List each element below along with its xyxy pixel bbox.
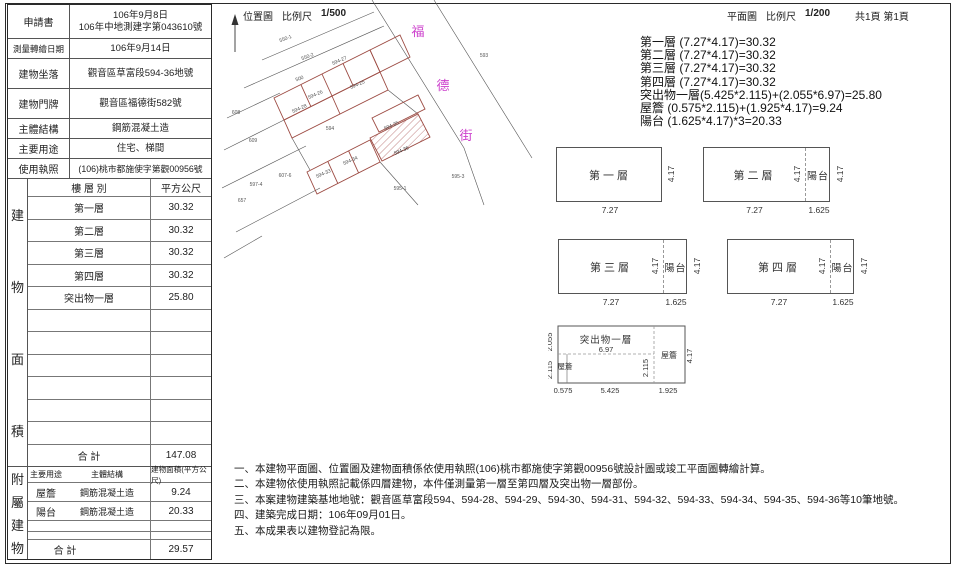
site-map: 福 德 街 550-1 550-2 500 594-27 594-25 594-… xyxy=(222,0,542,305)
street-char: 福 xyxy=(411,24,424,39)
floor-area: 30.32 xyxy=(151,242,211,264)
street-char: 德 xyxy=(436,78,449,93)
info-label: 主體結構 xyxy=(8,119,70,138)
calc-line: 第三層 (7.27*4.17)=30.32 xyxy=(640,62,882,75)
info-label: 建物坐落 xyxy=(8,59,70,88)
floor-plan-second-floor: 第二層 4.17 陽台 4.17 7.27 1.625 xyxy=(703,147,830,202)
parcel-label: 593 xyxy=(480,53,489,59)
plan-scale-label: 比例尺 xyxy=(766,8,796,23)
width-dimension: 7.27 xyxy=(728,297,830,307)
section-label-building-area: 建 物 面 積 xyxy=(8,179,28,466)
column-header-structure: 主體結構 xyxy=(64,467,151,482)
section-char: 物 xyxy=(11,277,24,296)
annex-header-row: 主要用途 主體結構 建物面積(平方公尺) xyxy=(28,467,211,483)
note-line: 五、本成果表以建物登記為限。 xyxy=(234,524,904,539)
height-dimension: 4.17 xyxy=(792,159,802,189)
floor-name: 第四層 xyxy=(28,265,151,287)
info-value: 觀音區福德街582號 xyxy=(70,89,211,118)
width-dimension: 7.27 xyxy=(559,297,663,307)
dimension: 1.925 xyxy=(659,386,678,395)
info-value: 106年9月14日 xyxy=(70,39,211,58)
floor-label: 第二層 xyxy=(704,167,805,183)
info-value: 鋼筋混凝土造 xyxy=(70,119,211,138)
table-row: 陽台 鋼筋混凝土造 20.33 xyxy=(28,502,211,521)
table-row xyxy=(28,377,211,400)
height-dimension: 4.17 xyxy=(817,251,827,281)
floor-name: 第二層 xyxy=(28,220,151,242)
annex-use: 陽台 xyxy=(28,502,64,520)
parcel-labels: 550-1 550-2 500 594-27 594-25 594-26 594… xyxy=(232,34,489,204)
table-row: 第一層 30.32 xyxy=(28,197,211,220)
parcel-label: 594-26 xyxy=(307,89,324,101)
height-dimension: 4.17 xyxy=(650,251,660,281)
table-row: 第二層 30.32 xyxy=(28,220,211,243)
note-line: 三、本案建物建築基地地號：觀音區草富段594、594-28、594-29、594… xyxy=(234,493,904,508)
floor-label: 第四層 xyxy=(728,259,830,275)
annex-building-table: 附 屬 建 物 主要用途 主體結構 建物面積(平方公尺) 屋簷 鋼筋混凝土造 9… xyxy=(8,467,211,559)
table-row: 第四層 30.32 xyxy=(28,265,211,288)
column-header-use: 主要用途 xyxy=(28,467,64,482)
calc-line: 陽台 (1.625*4.17)*3=20.33 xyxy=(640,115,882,128)
floor-plan-third-floor: 第三層 4.17 陽台 4.17 7.27 1.625 xyxy=(558,239,687,294)
floor-plan-fourth-floor: 第四層 4.17 陽台 4.17 7.27 1.625 xyxy=(727,239,854,294)
column-header-annex-area: 建物面積(平方公尺) xyxy=(151,467,211,482)
annex-use: 屋簷 xyxy=(28,483,64,501)
annex-area: 9.24 xyxy=(151,483,211,501)
floor-plan-first-floor: 第一層 4.17 7.27 xyxy=(556,147,662,202)
floor-area: 25.80 xyxy=(151,287,211,309)
street-char: 街 xyxy=(459,128,472,143)
area-calculations: 第一層 (7.27*4.17)=30.32 第二層 (7.27*4.17)=30… xyxy=(640,36,882,128)
table-row: 屋簷 鋼筋混凝土造 9.24 xyxy=(28,483,211,502)
annex-total-row: 合 計 29.57 xyxy=(28,540,211,559)
building-info-panel: 申請書 106年9月8日 106年中地測建字第043610號 測量轉繪日期 10… xyxy=(7,4,212,560)
annex-structure: 鋼筋混凝土造 xyxy=(64,502,151,520)
section-char: 建 xyxy=(11,515,24,534)
note-line: 一、本建物平面圖、位置圖及建物面積係依使用執照(106)桃市都施使字第觀0095… xyxy=(234,462,904,477)
parcel-label: 595-1 xyxy=(394,186,407,192)
application-date: 106年9月8日 xyxy=(113,10,168,22)
width-dimension: 7.27 xyxy=(704,205,805,215)
annex-structure: 鋼筋混凝土造 xyxy=(64,483,151,501)
info-row-survey-date: 測量轉繪日期 106年9月14日 xyxy=(8,39,211,59)
section-char: 物 xyxy=(11,538,24,557)
height-dimension: 4.17 xyxy=(692,251,702,281)
plan-title: 平面圖 xyxy=(727,8,757,23)
floor-area: 30.32 xyxy=(151,265,211,287)
column-header-area: 平方公尺 xyxy=(151,179,211,196)
balcony-width-dimension: 1.625 xyxy=(823,297,863,307)
note-line: 四、建築完成日期：106年09月01日。 xyxy=(234,508,904,523)
table-row xyxy=(28,422,211,445)
floor-plan-header: 平面圖 比例尺 1/200 xyxy=(727,8,830,23)
dimension: 6.97 xyxy=(599,345,614,354)
building-block-parcels xyxy=(274,35,430,194)
eave-label: 屋簷 xyxy=(558,361,573,371)
info-row-structure: 主體結構 鋼筋混凝土造 xyxy=(8,119,211,139)
balcony-label: 陽台 xyxy=(805,167,831,182)
parcel-label: 550-2 xyxy=(301,52,315,62)
info-value: 觀音區草富段594-36地號 xyxy=(70,59,211,88)
floor-name: 突出物一層 xyxy=(28,287,151,309)
parcel-label: 594 xyxy=(326,126,335,132)
total-label: 合 計 xyxy=(28,445,151,467)
table-row xyxy=(28,332,211,355)
floor-plan-projection: 2.055 2.115 突出物一層 6.97 屋簷 2.115 屋簷 4.17 … xyxy=(548,320,708,400)
balcony-label: 陽台 xyxy=(663,259,688,274)
total-label: 合 計 xyxy=(28,540,102,559)
parcel-label: 500 xyxy=(295,75,305,84)
notes-block: 一、本建物平面圖、位置圖及建物面積係依使用執照(106)桃市都施使字第觀0095… xyxy=(234,462,904,539)
column-header-floor: 樓 層 別 xyxy=(28,179,151,196)
dimension: 0.575 xyxy=(554,386,573,395)
floor-area: 30.32 xyxy=(151,197,211,219)
table-row: 突出物一層 25.80 xyxy=(28,287,211,310)
info-label: 建物門牌 xyxy=(8,89,70,118)
table-row xyxy=(28,532,211,540)
info-label: 使用執照 xyxy=(8,159,70,178)
dimension: 4.17 xyxy=(685,349,694,364)
floor-label: 第一層 xyxy=(557,167,663,183)
info-label: 申請書 xyxy=(8,5,70,38)
info-value: (106)桃市都施使字第觀00956號 xyxy=(70,159,211,178)
floor-name: 第一層 xyxy=(28,197,151,219)
parcel-label: 608 xyxy=(232,110,241,116)
table-row xyxy=(28,521,211,532)
building-area-table: 建 物 面 積 樓 層 別 平方公尺 第一層 30.32 第二層 30.32 第… xyxy=(8,179,211,467)
parcel-label: 607-6 xyxy=(279,173,292,179)
section-char: 建 xyxy=(11,205,24,224)
info-label: 測量轉繪日期 xyxy=(8,39,70,58)
eave-label: 屋簷 xyxy=(661,350,677,360)
info-row-site: 建物坐落 觀音區草富段594-36地號 xyxy=(8,59,211,89)
dimension: 2.115 xyxy=(641,359,650,377)
dimension: 5.425 xyxy=(601,386,620,395)
info-value: 106年9月8日 106年中地測建字第043610號 xyxy=(70,5,211,38)
parcel-label: 550-1 xyxy=(279,34,293,44)
note-line: 二、本建物依使用執照記載係四層建物，本件僅測量第一層至第四層及突出物一層部份。 xyxy=(234,477,904,492)
balcony-width-dimension: 1.625 xyxy=(656,297,696,307)
section-char: 面 xyxy=(11,349,24,368)
section-char: 附 xyxy=(11,469,24,488)
page-count: 共1頁 第1頁 xyxy=(855,8,909,23)
height-dimension: 4.17 xyxy=(835,159,845,189)
dimension: 2.055 xyxy=(548,333,554,352)
north-arrow-icon xyxy=(232,14,239,52)
section-char: 屬 xyxy=(11,492,24,511)
info-row-license: 使用執照 (106)桃市都施使字第觀00956號 xyxy=(8,159,211,179)
info-row-address: 建物門牌 觀音區福德街582號 xyxy=(8,89,211,119)
parcel-label: 594-33 xyxy=(315,168,332,180)
floor-label: 第三層 xyxy=(559,259,663,275)
table-row xyxy=(28,355,211,378)
annex-area: 20.33 xyxy=(151,502,211,520)
height-dimension: 4.17 xyxy=(859,251,869,281)
table-row: 第三層 30.32 xyxy=(28,242,211,265)
info-label: 主要用途 xyxy=(8,139,70,158)
floor-name: 第三層 xyxy=(28,242,151,264)
plan-scale-value: 1/200 xyxy=(805,8,830,23)
table-row xyxy=(28,400,211,423)
floor-area: 30.32 xyxy=(151,220,211,242)
parcel-label: 595-3 xyxy=(452,174,465,180)
height-dimension: 4.17 xyxy=(666,159,676,189)
table-row xyxy=(28,310,211,333)
width-dimension: 7.27 xyxy=(557,205,663,215)
parcel-label: 594-34 xyxy=(342,155,359,167)
parcel-label: 597-4 xyxy=(250,182,263,188)
info-row-application: 申請書 106年9月8日 106年中地測建字第043610號 xyxy=(8,5,211,39)
parcel-label: 657 xyxy=(238,198,247,204)
section-label-annex: 附 屬 建 物 xyxy=(8,467,28,559)
total-value: 29.57 xyxy=(151,540,211,559)
info-row-usage: 主要用途 住宅、梯間 xyxy=(8,139,211,159)
application-number: 106年中地測建字第043610號 xyxy=(79,22,203,34)
balcony-width-dimension: 1.625 xyxy=(799,205,839,215)
area-header-row: 樓 層 別 平方公尺 xyxy=(28,179,211,197)
parcel-label: 594-25 xyxy=(349,79,366,91)
info-value: 住宅、梯間 xyxy=(70,139,211,158)
parcel-label: 609 xyxy=(249,138,258,144)
calc-line: 第四層 (7.27*4.17)=30.32 xyxy=(640,76,882,89)
section-char: 積 xyxy=(11,421,24,440)
balcony-label: 陽台 xyxy=(830,259,855,274)
dimension: 2.115 xyxy=(548,361,554,379)
parcel-label: 594-28 xyxy=(291,103,308,115)
